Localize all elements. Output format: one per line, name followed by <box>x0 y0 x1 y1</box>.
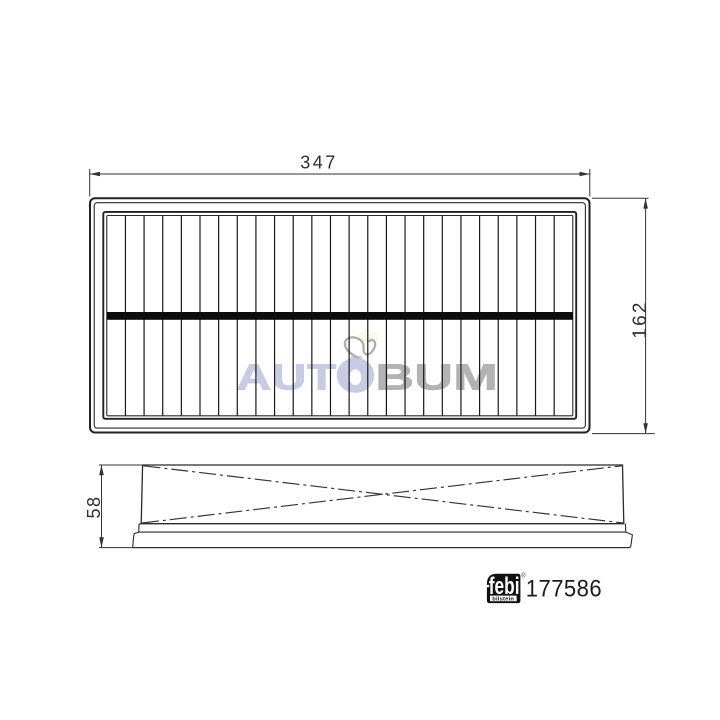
svg-text:162: 162 <box>630 300 651 338</box>
svg-text:58: 58 <box>84 495 104 518</box>
svg-text:177586: 177586 <box>526 575 602 602</box>
svg-text:bilstein: bilstein <box>492 596 514 602</box>
svg-text:347: 347 <box>300 152 338 172</box>
svg-text:AUT: AUT <box>237 357 337 397</box>
